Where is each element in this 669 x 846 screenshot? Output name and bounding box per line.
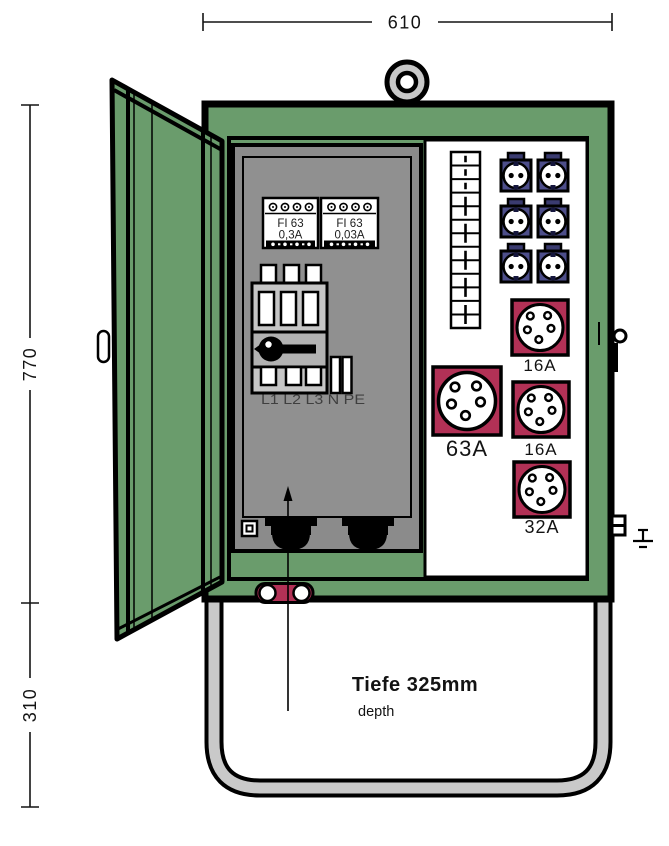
schuko-socket-5 [501, 244, 531, 282]
rcd-block-1: FI 63 0,3A [263, 198, 318, 248]
mounting-bracket [612, 516, 625, 535]
rcd1-model: FI 63 [277, 218, 303, 230]
cee-socket-16a-2 [513, 382, 569, 437]
dim-height-label: 770 [20, 347, 40, 382]
cee-socket-16a-2-label: 16A [524, 440, 557, 459]
schuko-socket-1 [501, 153, 531, 191]
cabinet-door [98, 80, 222, 639]
lifting-ring-icon [387, 62, 427, 106]
rcd1-rating: 0,3A [279, 230, 303, 242]
cee-socket-16a-1 [512, 300, 568, 355]
cee-socket-32a-label: 32A [524, 517, 559, 537]
double-insulation-icon [242, 521, 257, 536]
depth-sublabel: depth [358, 704, 394, 720]
schuko-socket-2 [538, 153, 568, 191]
dim-width-label: 610 [388, 13, 423, 33]
cee-socket-16a-1-label: 16A [523, 356, 556, 375]
rcd2-model: FI 63 [336, 218, 362, 230]
door-latch-hook [612, 330, 626, 372]
cable-inlet [256, 584, 313, 603]
mcb-strip [451, 152, 480, 328]
schuko-socket-4 [538, 199, 568, 237]
cabinet-diagram: 610 770 310 FI [0, 0, 669, 846]
cee-socket-32a [514, 462, 570, 517]
n-pe-terminals [331, 357, 352, 393]
schuko-socket-6 [538, 244, 568, 282]
rcd2-rating: 0,03A [334, 230, 364, 242]
door-hinge-handle [98, 331, 109, 362]
cee-socket-63a [433, 367, 501, 435]
schuko-socket-3 [501, 199, 531, 237]
cee-socket-63a-label: 63A [446, 436, 488, 461]
depth-label: Tiefe 325mm [352, 674, 478, 696]
earth-symbol-icon [633, 530, 653, 547]
phase-label: L1 L2 L3 N PE [261, 392, 365, 407]
dim-stand-label: 310 [20, 688, 40, 723]
rcd-block-2: FI 63 0,03A [321, 198, 378, 248]
